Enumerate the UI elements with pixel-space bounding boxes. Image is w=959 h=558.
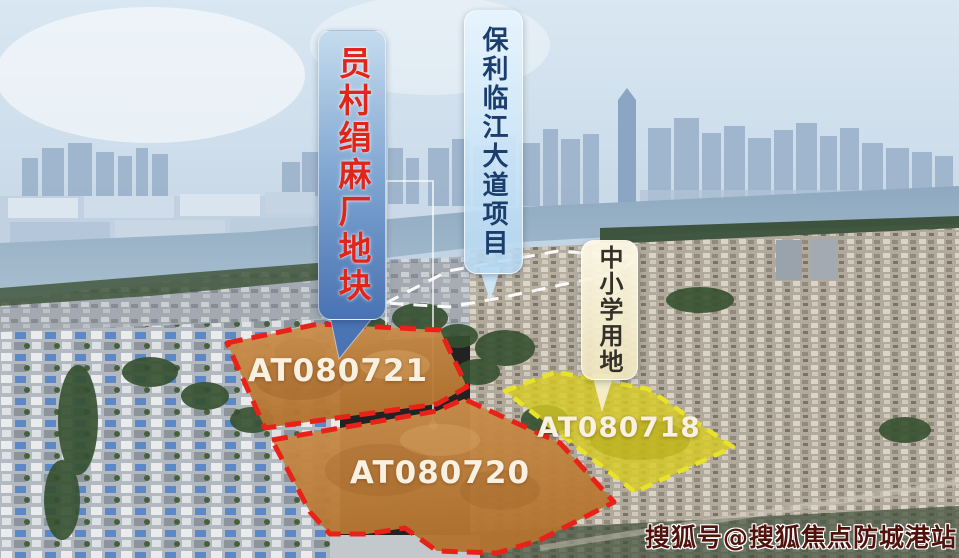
plot-label-AT080721: AT080721 <box>248 353 428 389</box>
plot-label-AT080718: AT080718 <box>537 411 701 444</box>
watermark: 搜狐号@搜狐焦点防城港站 <box>645 518 957 554</box>
project-callout: 保利临江大道项目 <box>464 10 523 274</box>
annotated-aerial-photo: 员村绢麻厂地块 保利临江大道项目 中小学用地 AT080721 AT080720… <box>0 0 959 558</box>
plot-label-AT080720: AT080720 <box>350 455 530 491</box>
school-land-callout: 中小学用地 <box>581 240 638 380</box>
tall-tower-silhouette <box>618 88 636 215</box>
factory-plot-callout: 员村绢麻厂地块 <box>318 30 386 320</box>
